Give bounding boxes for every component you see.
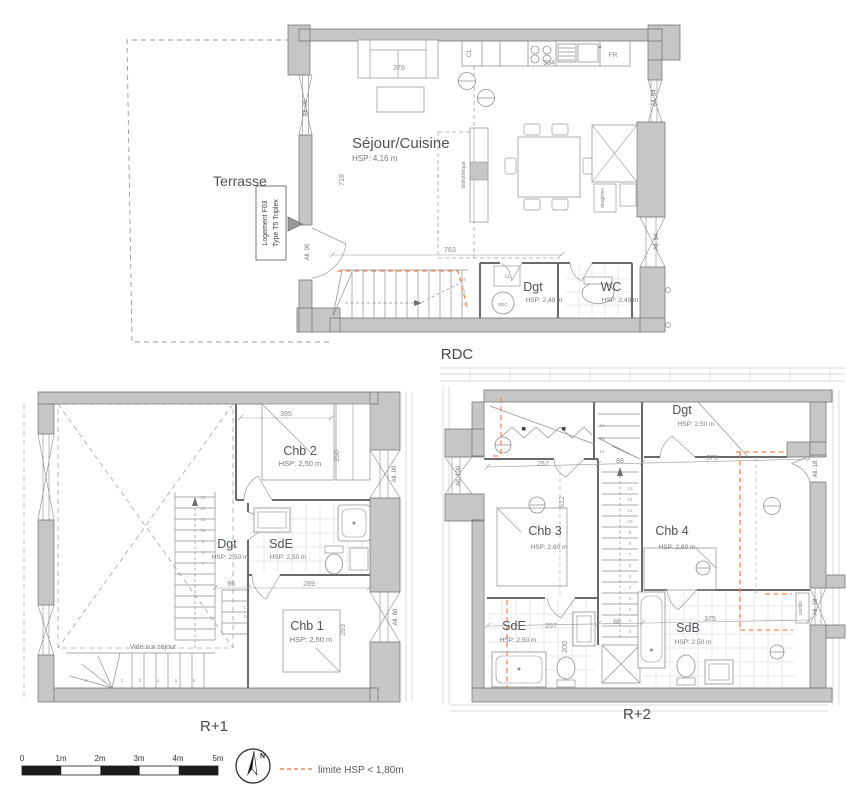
bath-cabinet bbox=[350, 548, 368, 570]
scale-tick: 5m bbox=[212, 754, 223, 763]
room-label-dgt: Dgt bbox=[217, 537, 237, 551]
room-label-chb3: Chb 3 bbox=[528, 524, 561, 538]
stair-number: 11 bbox=[201, 517, 206, 522]
stair-number: 12 bbox=[200, 506, 206, 511]
level-label-rdc: RDC bbox=[441, 346, 474, 363]
stair-number: 2 bbox=[121, 678, 124, 683]
chair bbox=[505, 158, 516, 174]
room-hsp-sde: HSP: 2,50 m bbox=[500, 637, 537, 644]
walkline-arrow-icon bbox=[192, 497, 198, 506]
room-hsp-dgt: HSP: 2,50 m bbox=[678, 421, 715, 428]
stair-number: 12 bbox=[627, 497, 633, 502]
stairs bbox=[598, 414, 640, 683]
scale-bar-segment bbox=[22, 766, 61, 775]
scale-tick: 0 bbox=[20, 754, 25, 763]
toilet bbox=[557, 657, 575, 679]
closet-rail bbox=[500, 427, 592, 438]
stair-walkline bbox=[345, 284, 458, 303]
allege-left-top: All. 00 bbox=[303, 99, 309, 116]
room-hsp-sdb: HSP: 2,50 m bbox=[675, 639, 712, 646]
room-label-chb2: Chb 2 bbox=[283, 444, 316, 458]
stair-number: 8 bbox=[629, 541, 632, 546]
stair-number: 13 bbox=[627, 486, 633, 491]
scale-bar-segment bbox=[100, 766, 139, 775]
scale-tick: 1m bbox=[55, 754, 66, 763]
stair-number: 12 bbox=[460, 302, 466, 307]
plan-r2: Dgt HSP: 2,50 m Chb 3 HSP: 2,60 m Chb 4 … bbox=[440, 368, 845, 723]
stair-number: 13 bbox=[200, 495, 206, 500]
stair-number: 4 bbox=[629, 585, 632, 590]
floorplan-drawing: Séjour/Cuisine HSP: 4,16 m Dgt HSP: 2,49… bbox=[0, 0, 847, 800]
allege-left: All. 100 bbox=[456, 465, 462, 486]
stair-number: 3 bbox=[139, 678, 142, 683]
stair-number: 9 bbox=[629, 530, 632, 535]
allege-right-top: All. 18 bbox=[813, 460, 819, 477]
shower-drain bbox=[518, 668, 521, 671]
room-hsp-sejour: HSP: 4,16 m bbox=[352, 154, 398, 163]
stair-number: 1 bbox=[629, 618, 632, 623]
shelves-label: étagères bbox=[600, 188, 606, 208]
room-label-sejour: Séjour/Cuisine bbox=[352, 135, 450, 152]
stair-number: 15 bbox=[599, 436, 605, 441]
room-label-chb1: Chb 1 bbox=[290, 619, 323, 633]
dim-corridor: 95 bbox=[227, 581, 235, 588]
dim-sofa: 376 bbox=[393, 65, 405, 72]
allege-right-top: All. 90 bbox=[392, 465, 398, 482]
bookshelf-block bbox=[470, 162, 488, 180]
dim-lower-right: 375 bbox=[704, 616, 716, 623]
stairs bbox=[333, 270, 468, 318]
stair-number: 0 bbox=[85, 678, 88, 683]
stair-number: 6 bbox=[193, 678, 196, 683]
floorplan-sheet: Séjour/Cuisine HSP: 4,16 m Dgt HSP: 2,49… bbox=[0, 0, 847, 800]
room-hsp-wc: HSP: 2,49 m bbox=[602, 297, 639, 304]
stair-number: 11 bbox=[628, 508, 633, 513]
bookshelf-label: bibliothèque bbox=[461, 161, 467, 188]
washer-label: LL bbox=[505, 274, 511, 280]
stair-number: 8 bbox=[202, 550, 205, 555]
room-label-dgt: Dgt bbox=[523, 280, 543, 294]
facade-lines bbox=[406, 392, 412, 702]
toilet-tank bbox=[325, 546, 343, 553]
coffee-table bbox=[377, 87, 424, 112]
room-hsp-chb1: HSP: 2,50 m bbox=[290, 635, 333, 644]
bed bbox=[262, 404, 334, 480]
cooktop-burner bbox=[531, 46, 539, 54]
allege-right-bottom: All. 18 bbox=[813, 598, 819, 615]
dim-chb1-width: 289 bbox=[303, 581, 315, 588]
chair bbox=[552, 199, 568, 210]
level-label-r2: R+2 bbox=[623, 706, 651, 723]
terrasse-label: Terrasse bbox=[213, 173, 267, 189]
closet-label: CL bbox=[466, 48, 473, 57]
window-type-oscillo: oscillo bbox=[798, 601, 804, 615]
dim-kitchen: 384 bbox=[543, 60, 555, 67]
dim-lower-mid: 88 bbox=[613, 619, 621, 626]
rail-support bbox=[562, 427, 566, 431]
shower-drain bbox=[353, 522, 356, 525]
bathtub bbox=[638, 592, 665, 668]
dim-sde-depth: 200 bbox=[562, 641, 569, 653]
dim-upper-right: 375 bbox=[706, 455, 718, 462]
sink-faucet bbox=[599, 46, 602, 49]
unit-tag-line1: Logement F03 bbox=[262, 200, 269, 245]
allege-left-bottom: All. 00 bbox=[305, 243, 311, 260]
chair bbox=[524, 124, 540, 135]
stair-number: 3 bbox=[629, 596, 632, 601]
water-heater-label: BEC bbox=[498, 302, 508, 307]
north-label: N bbox=[260, 753, 265, 760]
stair-number: 7 bbox=[629, 552, 632, 557]
dim-entry: 718 bbox=[339, 174, 346, 186]
stairs bbox=[66, 492, 248, 688]
stair-number: 0 bbox=[629, 629, 632, 634]
room-label-chb4: Chb 4 bbox=[655, 524, 688, 538]
dim-lower-left: 257 bbox=[545, 623, 557, 630]
room-label-wc: WC bbox=[601, 280, 622, 294]
chair bbox=[524, 199, 540, 210]
void-label: Vide sur séjour bbox=[130, 644, 177, 651]
facade-vent bbox=[666, 323, 671, 328]
scale-tick: 3m bbox=[133, 754, 144, 763]
walkline-arrow-icon bbox=[617, 467, 623, 476]
stair-number: 13 bbox=[460, 289, 466, 294]
toilet-tank bbox=[677, 678, 695, 685]
toilet-tank bbox=[557, 680, 575, 687]
room-hsp-chb2: HSP: 2,50 m bbox=[279, 459, 322, 468]
door-symbols bbox=[312, 228, 592, 281]
stair-number: 7 bbox=[202, 561, 205, 566]
room-label-sde: SdE bbox=[269, 537, 293, 551]
stair-number: 10 bbox=[200, 528, 206, 533]
stair-number: 16 bbox=[243, 614, 249, 619]
stair-number: 9 bbox=[202, 539, 205, 544]
stair-number: 10 bbox=[627, 519, 633, 524]
room-hsp-chb3: HSP: 2,60 m bbox=[531, 544, 568, 551]
rail-support bbox=[522, 427, 526, 431]
scale-bar-segment bbox=[179, 766, 218, 775]
facade-vent bbox=[666, 288, 671, 293]
dim-lower: 763 bbox=[444, 247, 456, 254]
stair-number: 5 bbox=[175, 678, 178, 683]
chair bbox=[552, 124, 568, 135]
stair-number: 6 bbox=[629, 563, 632, 568]
scale-tick: 4m bbox=[172, 754, 183, 763]
sink bbox=[573, 612, 595, 646]
room-hsp-sde: HSP: 2,50 m bbox=[270, 554, 307, 561]
allege-right-top: All. 54 bbox=[652, 89, 658, 106]
plan-r1: Chb 2 HSP: 2,50 m Dgt HSP: 2,50 m SdE HS… bbox=[24, 392, 412, 735]
cooktop-burner bbox=[531, 55, 539, 63]
toilet bbox=[677, 655, 695, 677]
dim-chb2-depth: 250 bbox=[334, 450, 341, 462]
hsp-limit-note: limite HSP < 1,80m bbox=[318, 765, 404, 776]
stair-number: 4 bbox=[157, 678, 160, 683]
shelf-unit bbox=[620, 184, 636, 206]
unit-tag-line2: Type T5 Triplex bbox=[273, 199, 280, 247]
dim-chb2-width: 395 bbox=[280, 411, 292, 418]
scale-tick: 2m bbox=[94, 754, 105, 763]
room-label-sde: SdE bbox=[502, 619, 526, 633]
dim-upper-mid: 88 bbox=[616, 458, 624, 465]
stair-number: 14 bbox=[599, 449, 605, 454]
void-dashed-outline bbox=[58, 404, 233, 648]
stair-number: 5 bbox=[629, 574, 632, 579]
dining-table bbox=[518, 137, 580, 197]
room-hsp-dgt: HSP: 2,50 m bbox=[212, 554, 249, 561]
room-hsp-dgt: HSP: 2,49 m bbox=[526, 297, 563, 304]
sink-basin bbox=[258, 512, 286, 528]
dim-chb1-depth: 293 bbox=[340, 624, 347, 636]
room-label-dgt: Dgt bbox=[672, 403, 692, 417]
bed-fold bbox=[497, 508, 521, 532]
stair-number: 14 bbox=[460, 277, 466, 282]
allege-right-bottom: All. 80 bbox=[393, 608, 399, 625]
dim-left-depth: 512 bbox=[559, 496, 566, 508]
allege-right-mid: All. 54 bbox=[654, 233, 660, 250]
room-label-sdb: SdB bbox=[676, 621, 700, 635]
toilet bbox=[326, 554, 343, 574]
cooktop-burner bbox=[543, 46, 551, 54]
facade-ticks bbox=[470, 368, 830, 381]
legend: 0 1m 2m 3m 4m 5m N limite HSP < 1,80m bbox=[20, 749, 404, 783]
stair-number: 16 bbox=[599, 423, 605, 428]
bathtub-drain bbox=[650, 649, 653, 652]
plan-rdc: Séjour/Cuisine HSP: 4,16 m Dgt HSP: 2,49… bbox=[127, 25, 680, 363]
stair-number: 2 bbox=[629, 607, 632, 612]
window-symbols bbox=[445, 457, 826, 625]
room-hsp-chb4: HSP: 2,60 m bbox=[659, 544, 696, 551]
unit-tag-box bbox=[256, 186, 286, 260]
fridge-label: FR bbox=[609, 52, 618, 59]
stair-number: 17 bbox=[243, 605, 249, 610]
level-label-r1: R+1 bbox=[200, 718, 228, 735]
dim-upper-left: 257 bbox=[537, 461, 549, 468]
